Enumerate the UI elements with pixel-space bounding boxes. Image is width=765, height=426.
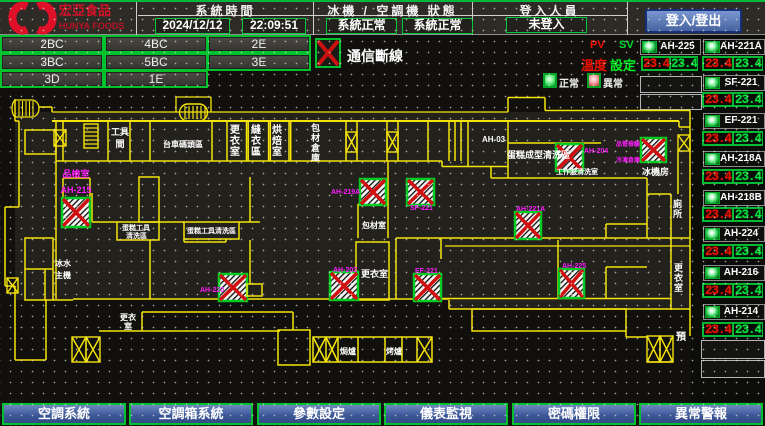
svg-text:間: 間 xyxy=(115,139,124,149)
svg-text:SF-221: SF-221 xyxy=(410,205,433,212)
svg-text:主機: 主機 xyxy=(55,270,71,280)
svg-text:AH-204: AH-204 xyxy=(584,148,608,155)
svg-text:廁: 廁 xyxy=(673,198,682,209)
svg-text:AH-225: AH-225 xyxy=(562,263,586,270)
svg-text:所: 所 xyxy=(673,208,682,219)
svg-text:AH-202: AH-202 xyxy=(333,267,357,274)
svg-text:包: 包 xyxy=(310,122,320,133)
svg-text:材: 材 xyxy=(310,132,320,143)
svg-text:預: 預 xyxy=(676,331,687,343)
svg-text:冰機房: 冰機房 xyxy=(642,166,669,177)
svg-text:倉: 倉 xyxy=(310,142,321,153)
svg-text:區: 區 xyxy=(251,146,261,158)
svg-text:室: 室 xyxy=(230,145,240,158)
svg-text:冰水: 冰水 xyxy=(55,258,72,268)
svg-text:室: 室 xyxy=(124,321,132,331)
svg-text:焙: 焙 xyxy=(272,134,282,147)
svg-text:品檢室: 品檢室 xyxy=(62,168,89,179)
svg-text:包材室: 包材室 xyxy=(361,220,386,230)
svg-text:工作服清洗室: 工作服清洗室 xyxy=(556,167,598,176)
svg-text:冷凍倉庫: 冷凍倉庫 xyxy=(616,156,640,164)
svg-text:蛋糕工具: 蛋糕工具 xyxy=(122,223,150,232)
svg-text:更: 更 xyxy=(230,124,241,136)
svg-text:工具: 工具 xyxy=(111,127,129,137)
svg-text:更衣: 更衣 xyxy=(120,312,136,322)
svg-text:焗爐: 焗爐 xyxy=(340,346,356,356)
svg-text:蛋糕工具清洗區: 蛋糕工具清洗區 xyxy=(187,226,236,235)
svg-text:烤爐: 烤爐 xyxy=(386,346,402,356)
svg-text:烘: 烘 xyxy=(272,123,282,136)
svg-text:室: 室 xyxy=(272,145,282,158)
svg-text:衣: 衣 xyxy=(674,272,683,283)
svg-text:清洗區: 清洗區 xyxy=(126,231,147,240)
svg-text:AH-03: AH-03 xyxy=(482,135,506,144)
svg-text:更衣室: 更衣室 xyxy=(361,268,388,279)
svg-text:庫: 庫 xyxy=(311,152,320,163)
svg-text:EF-221: EF-221 xyxy=(415,268,438,275)
svg-text:AH-215: AH-215 xyxy=(60,185,91,195)
svg-text:更: 更 xyxy=(674,263,684,273)
svg-text:AH-220: AH-220 xyxy=(200,287,224,294)
svg-text:AH-221A: AH-221A xyxy=(516,206,545,213)
svg-text:衣: 衣 xyxy=(230,134,240,147)
svg-text:品管檢驗: 品管檢驗 xyxy=(616,140,640,148)
svg-text:台車碼頭區: 台車碼頭區 xyxy=(163,139,203,149)
svg-text:AH-219A: AH-219A xyxy=(331,189,360,196)
svg-text:室: 室 xyxy=(674,282,683,293)
svg-text:蛋糕成型清洗區: 蛋糕成型清洗區 xyxy=(507,149,570,160)
svg-text:縫: 縫 xyxy=(251,123,262,136)
svg-text:衣: 衣 xyxy=(251,134,261,147)
